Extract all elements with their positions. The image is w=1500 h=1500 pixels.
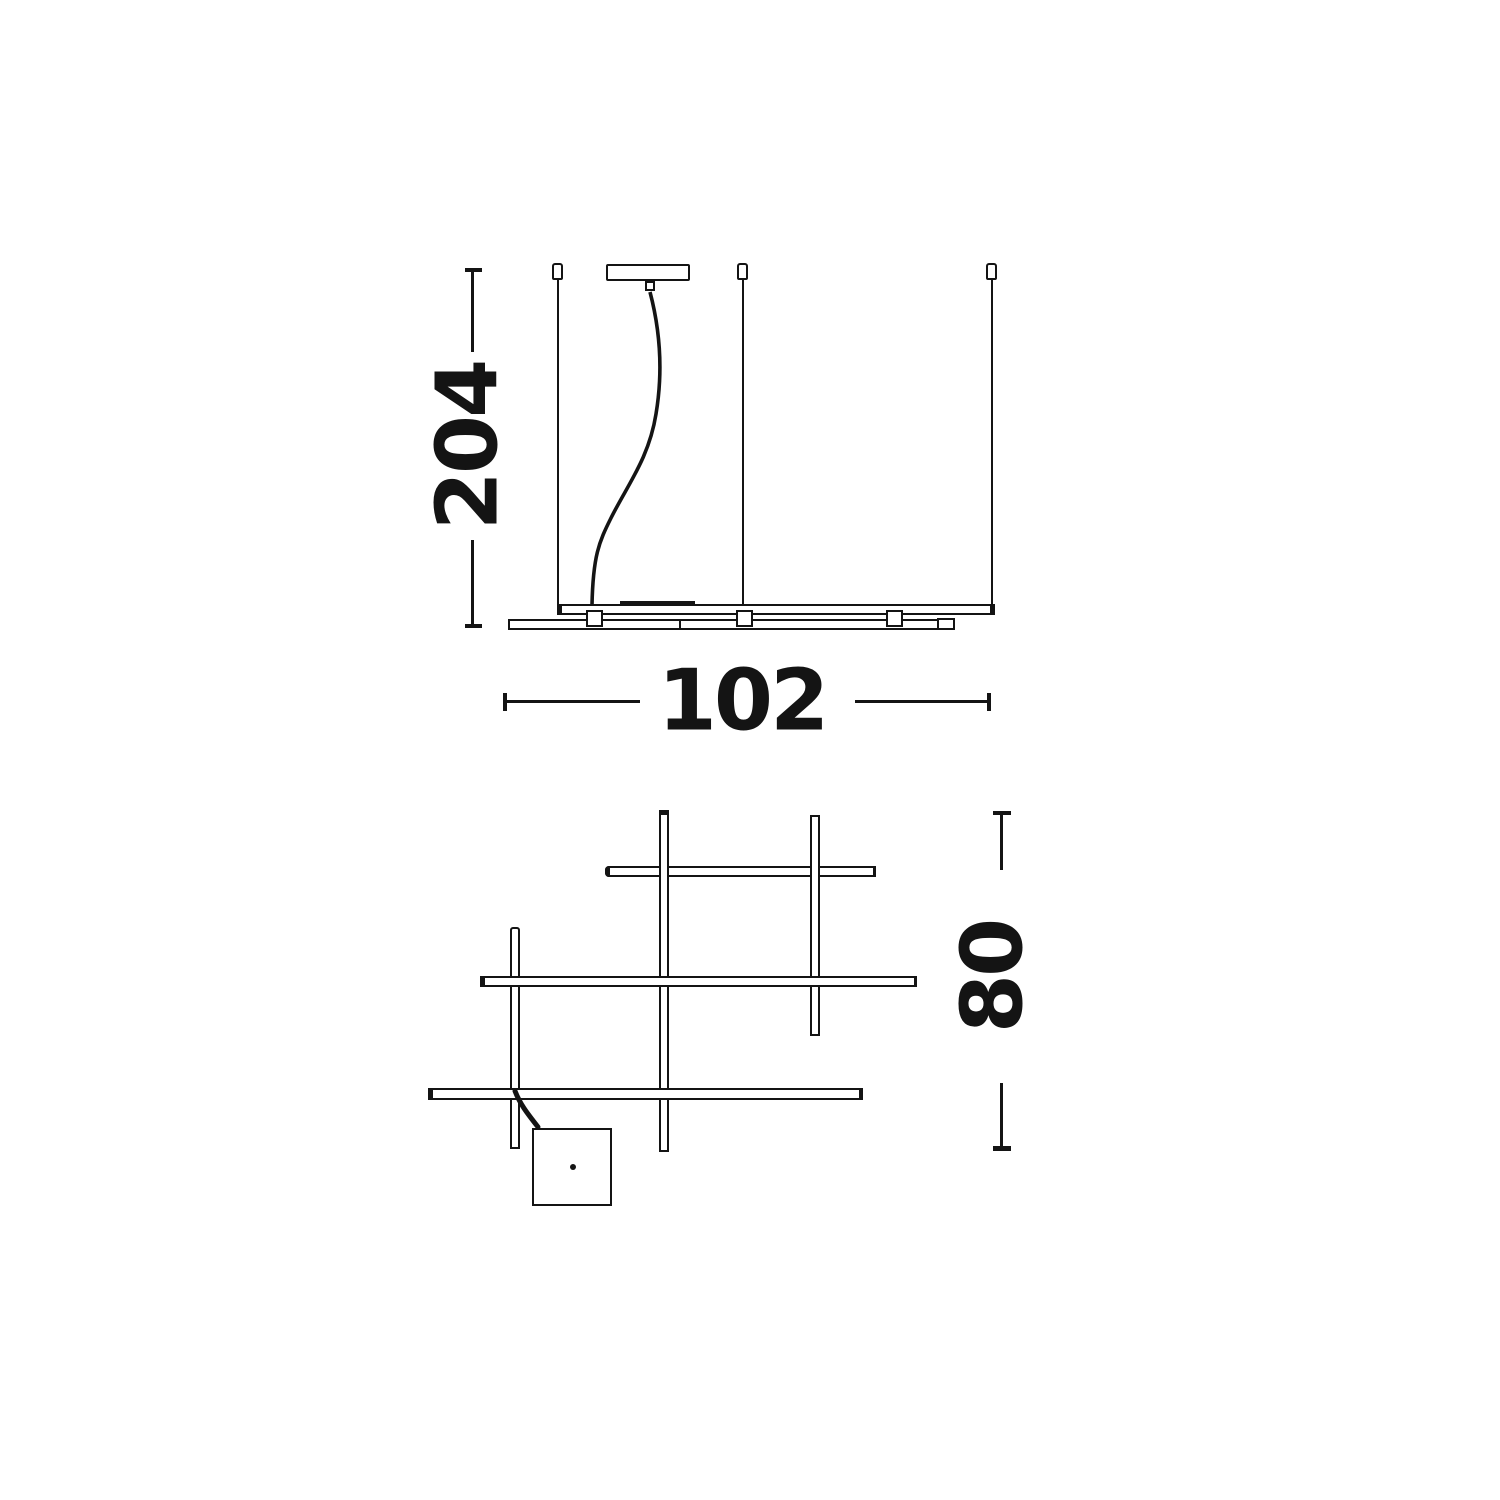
- plan-hbar-top-cap-left: [605, 866, 610, 877]
- lower-bar-end-sleeve: [937, 618, 955, 630]
- depth-cap-bottom: [993, 1146, 1011, 1151]
- technical-drawing: 204 10: [0, 0, 1500, 1500]
- bar-connector-3: [886, 610, 903, 627]
- plan-horizontal-bar-bottom: [428, 1088, 863, 1100]
- suspension-wire-middle: [742, 278, 744, 606]
- plan-vertical-bar-right: [810, 815, 820, 1036]
- plan-horizontal-bar-middle: [480, 976, 917, 987]
- bar-connector-1: [586, 610, 603, 627]
- depth-line-lower-segment: [1000, 1083, 1003, 1147]
- wire-ceiling-fitting-middle: [737, 263, 748, 280]
- dimension-line-right-segment: [855, 700, 990, 703]
- plan-vbar-center-cap-top: [659, 810, 669, 815]
- driver-box-center-dot: [570, 1164, 576, 1170]
- plan-horizontal-bar-top: [605, 866, 876, 877]
- plan-hbar-middle-cap-left: [480, 976, 485, 987]
- suspension-wire-right: [991, 278, 993, 606]
- dimension-cap-bottom: [465, 624, 482, 628]
- suspension-wire-left: [557, 278, 559, 606]
- depth-line-upper-segment: [1000, 813, 1003, 870]
- dimension-line-left-segment: [505, 700, 640, 703]
- top-view: 80: [0, 760, 1500, 1500]
- upper-light-bar: [557, 604, 995, 615]
- side-view: 204 10: [0, 0, 1500, 760]
- wire-ceiling-fitting-left: [552, 263, 563, 280]
- upper-bar-end-cap-left: [557, 604, 562, 615]
- plan-hbar-middle-cap-right: [914, 976, 917, 987]
- plan-vertical-bar-left: [510, 927, 520, 1149]
- lower-bar-seam: [679, 619, 681, 630]
- height-dimension-label: 204: [426, 362, 511, 530]
- ceiling-canopy: [606, 264, 690, 281]
- plan-hbar-bottom-cap-right: [859, 1088, 863, 1100]
- dimension-line-upper-segment: [471, 270, 474, 352]
- upper-bar-end-cap-right: [990, 604, 995, 615]
- dimension-line-lower-segment: [471, 540, 474, 628]
- lower-light-bar: [508, 619, 940, 630]
- power-cable: [592, 292, 660, 605]
- dimension-tick-right: [987, 693, 991, 711]
- bar-connector-2: [736, 610, 753, 627]
- wire-ceiling-fitting-right: [986, 263, 997, 280]
- depth-dimension-label: 80: [951, 921, 1036, 1033]
- width-dimension-label: 102: [658, 659, 826, 744]
- canopy-cable-gland: [645, 281, 655, 291]
- plan-hbar-top-cap-right: [873, 866, 876, 877]
- plan-hbar-bottom-cap-left: [428, 1088, 433, 1100]
